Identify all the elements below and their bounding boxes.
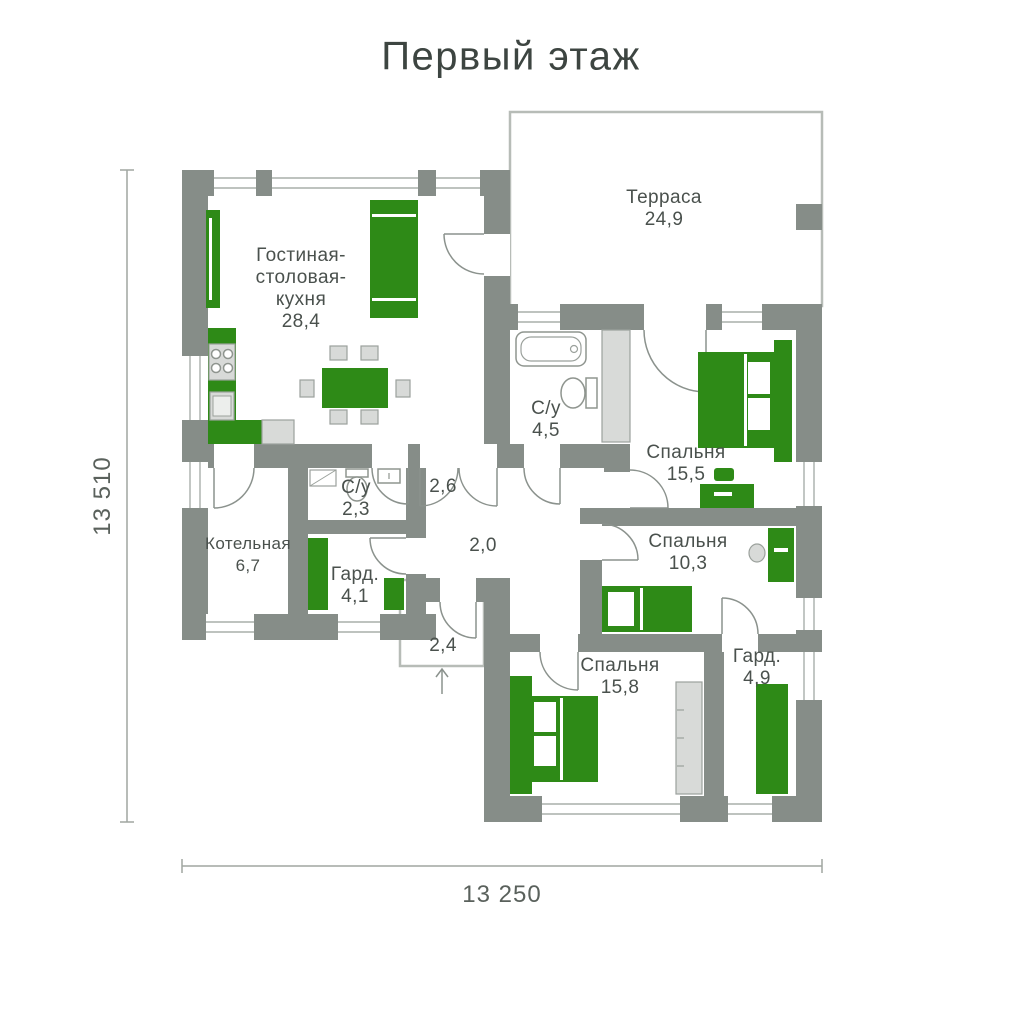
toilet-main <box>561 378 597 408</box>
room-label-boiler: Котельная6,7 <box>205 533 291 577</box>
dining-table-set <box>300 346 410 424</box>
dimension-width-label: 13 250 <box>462 881 541 909</box>
washbasin-small <box>378 469 400 483</box>
bed-single <box>602 586 692 632</box>
window <box>518 304 560 330</box>
window <box>796 652 822 700</box>
room-label-wardrobe-1: Гард.4,1 <box>331 564 379 608</box>
window <box>214 170 256 196</box>
wardrobe-gray <box>676 682 702 794</box>
window <box>272 170 418 196</box>
entrance-arrow-icon <box>436 669 448 694</box>
tv-unit <box>206 210 220 308</box>
room-label-wardrobe-2: Гард.4,9 <box>733 646 781 690</box>
floor-plan-page: Первый этаж Гостиная- столовая- кухня 28… <box>0 0 1022 1024</box>
window <box>182 462 208 508</box>
room-label-bathroom-small: С/у2,3 <box>341 477 371 521</box>
room-label-terrace: Терраса24,9 <box>626 187 702 231</box>
window <box>728 796 772 822</box>
terrace-pillar <box>796 204 822 230</box>
room-label-hallway-1: 2,6 <box>429 476 457 498</box>
page-title: Первый этаж <box>381 35 641 80</box>
sofa <box>370 200 418 318</box>
window <box>182 356 208 420</box>
room-label-living: Гостиная- столовая- кухня 28,4 <box>256 245 347 333</box>
window <box>206 614 254 640</box>
fridge <box>262 420 294 444</box>
window <box>436 170 480 196</box>
window <box>796 598 822 630</box>
room-label-bedroom-3: Спальня15,8 <box>580 655 659 699</box>
window <box>796 462 822 506</box>
room-label-bedroom-1: Спальня15,5 <box>646 442 725 486</box>
duct-cabinet <box>602 330 630 442</box>
window <box>722 304 762 330</box>
dimension-height-label: 13 510 <box>89 456 117 535</box>
room-label-bedroom-2: Спальня10,3 <box>648 531 727 575</box>
kitchen-sink <box>210 392 234 420</box>
bathtub <box>516 332 586 366</box>
window <box>542 796 680 822</box>
stove <box>209 344 235 380</box>
room-label-hallway-2: 2,0 <box>469 535 497 557</box>
utility-shaft <box>310 470 336 486</box>
desk-2 <box>749 528 794 582</box>
floor-plan-drawing <box>0 0 1022 1024</box>
room-label-entrance: 2,4 <box>429 635 457 657</box>
wardrobe-cabinet-49 <box>756 684 788 794</box>
room-label-bathroom-main: С/у4,5 <box>531 398 561 442</box>
window <box>338 614 380 640</box>
